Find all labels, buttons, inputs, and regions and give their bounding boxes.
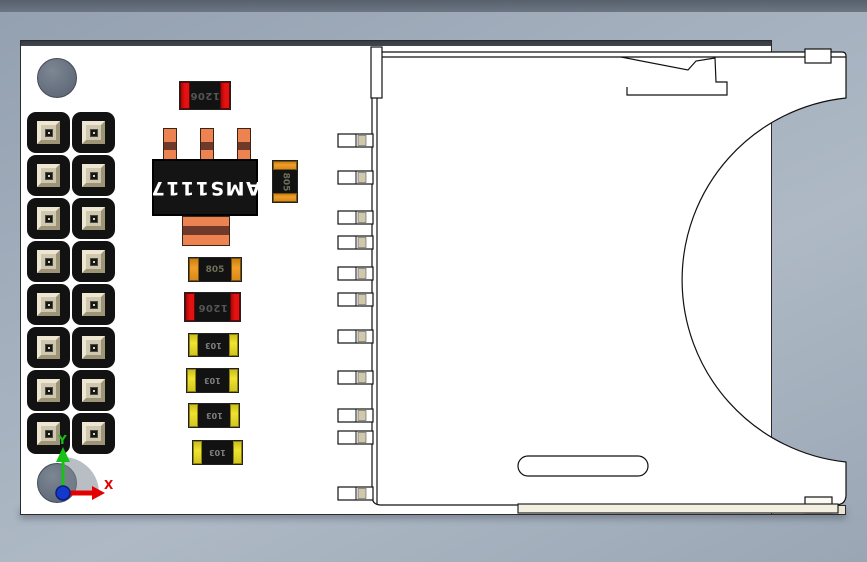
header-pin-hole [45, 129, 53, 137]
header-pin [82, 250, 105, 273]
header-pin [37, 164, 60, 187]
header-pin-hole [90, 344, 98, 352]
header-pin-hole [90, 430, 98, 438]
header-pin [82, 207, 105, 230]
header-pin-hole [45, 344, 53, 352]
header-pin-cell[interactable] [72, 370, 115, 411]
header-pin-hole [45, 172, 53, 180]
cad-viewport: 1206 AMS1117 805 805 1206 103 [0, 0, 867, 562]
header-pin-hole [90, 301, 98, 309]
tab-band [183, 226, 229, 235]
voltage-regulator-ams1117[interactable]: AMS1117 [152, 159, 258, 216]
component-body: 805 [273, 170, 297, 193]
header-pin-hole [90, 215, 98, 223]
regulator-tab [182, 216, 230, 246]
component-end-cap [193, 441, 202, 464]
header-pin-cell[interactable] [72, 327, 115, 368]
component-end-cap [229, 334, 238, 356]
component-body: 103 [198, 404, 230, 427]
pcb-board[interactable] [20, 40, 772, 515]
component-end-cap [231, 258, 241, 281]
header-pin [37, 422, 60, 445]
component-end-cap [189, 404, 198, 427]
component-body: 103 [196, 369, 229, 392]
component-end-cap [185, 293, 195, 321]
header-pin [82, 121, 105, 144]
header-pin-hole [45, 258, 53, 266]
header-pin-hole [45, 387, 53, 395]
component-label: 1206 [198, 302, 228, 313]
component-body: 103 [202, 441, 233, 464]
header-pin-cell[interactable] [27, 413, 70, 454]
header-pin [82, 422, 105, 445]
header-pin-cell[interactable] [72, 198, 115, 239]
component-label: 1206 [190, 90, 220, 101]
header-pin-cell[interactable] [27, 112, 70, 153]
component-label: 103 [209, 448, 226, 457]
component-end-cap [273, 193, 297, 202]
fuse-1206-top[interactable]: 1206 [179, 81, 231, 110]
sd-housing-top-tab [805, 49, 831, 63]
header-pin [37, 336, 60, 359]
resistor-103-4[interactable]: 103 [192, 440, 243, 465]
component-end-cap [230, 293, 240, 321]
header-pin-hole [90, 129, 98, 137]
header-pin-cell[interactable] [72, 241, 115, 282]
header-pin-hole [90, 387, 98, 395]
leg-band [201, 142, 213, 150]
regulator-label: AMS1117 [150, 177, 261, 199]
resistor-103-3[interactable]: 103 [188, 403, 240, 428]
header-pin-hole [45, 430, 53, 438]
component-body: 103 [198, 334, 229, 356]
mounting-hole-top[interactable] [37, 58, 77, 98]
component-end-cap [189, 334, 198, 356]
header-pin-cell[interactable] [27, 198, 70, 239]
component-label: 103 [205, 341, 222, 350]
leg-band [238, 142, 250, 150]
regulator-leg [163, 128, 177, 161]
header-pin-cell[interactable] [27, 241, 70, 282]
header-pin-hole [45, 301, 53, 309]
resistor-103-2[interactable]: 103 [186, 368, 239, 393]
header-pin [37, 121, 60, 144]
component-end-cap [220, 82, 230, 109]
header-pin [82, 164, 105, 187]
header-pin-cell[interactable] [27, 370, 70, 411]
header-pin-hole [90, 258, 98, 266]
component-label: 805 [206, 265, 225, 275]
component-body: 1206 [195, 293, 230, 321]
capacitor-805-horizontal[interactable]: 805 [188, 257, 242, 282]
component-label: 103 [204, 376, 221, 385]
component-body: 805 [199, 258, 231, 281]
header-pin-cell[interactable] [27, 155, 70, 196]
component-end-cap [229, 369, 238, 392]
header-pin [82, 379, 105, 402]
header-pin-hole [90, 172, 98, 180]
header-pin-cell[interactable] [72, 112, 115, 153]
mounting-hole-bottom[interactable] [37, 463, 77, 503]
header-pin [82, 293, 105, 316]
component-end-cap [233, 441, 242, 464]
capacitor-805-vertical[interactable]: 805 [272, 160, 298, 203]
header-pin-cell[interactable] [27, 284, 70, 325]
component-label: 103 [206, 411, 223, 420]
header-pin-cell[interactable] [72, 413, 115, 454]
header-pin [37, 207, 60, 230]
header-pin [82, 336, 105, 359]
header-pin [37, 250, 60, 273]
header-pin-hole [45, 215, 53, 223]
component-end-cap [180, 82, 190, 109]
leg-band [164, 142, 176, 150]
component-end-cap [230, 404, 239, 427]
component-label: 805 [280, 172, 290, 191]
component-end-cap [187, 369, 196, 392]
regulator-leg [237, 128, 251, 161]
header-pin [37, 293, 60, 316]
header-pin-cell[interactable] [72, 155, 115, 196]
pcb-top-edge [21, 41, 771, 46]
resistor-103-1[interactable]: 103 [188, 333, 239, 357]
viewport-top-band [0, 0, 867, 12]
header-pin [37, 379, 60, 402]
header-pin-cell[interactable] [27, 327, 70, 368]
regulator-leg [200, 128, 214, 161]
component-body: 1206 [190, 82, 220, 109]
header-pin-cell[interactable] [72, 284, 115, 325]
pin-header[interactable] [27, 112, 115, 454]
fuse-1206-mid[interactable]: 1206 [184, 292, 241, 322]
component-end-cap [189, 258, 199, 281]
component-end-cap [273, 161, 297, 170]
